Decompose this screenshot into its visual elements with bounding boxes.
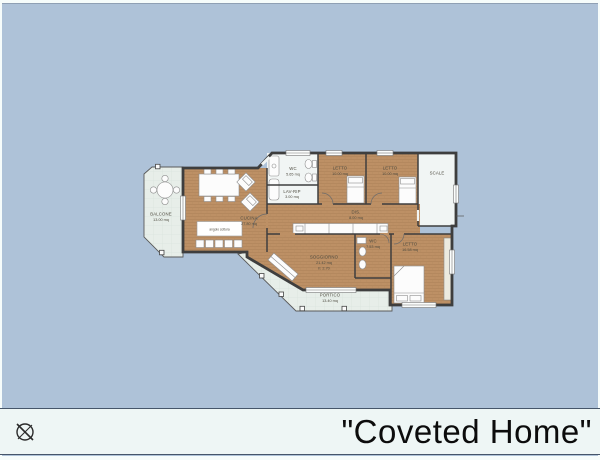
- kitchenette-label: angolo cottura: [209, 228, 229, 232]
- room-label-portico: PORTICO: [320, 293, 341, 298]
- room-label-letto-3: LETTO: [403, 242, 418, 247]
- room-area-letto-1: 10.00 mq: [332, 172, 348, 176]
- room-label-soggiorno: SOGGIORNO: [310, 255, 339, 260]
- room-area-soggiorno: 21.42 mq: [316, 261, 332, 265]
- room-label-scale: SCALE: [430, 171, 445, 176]
- room-label-letto-2: LETTO: [383, 166, 398, 171]
- room-area-portico: 13.40 mq: [322, 299, 338, 303]
- room-label-letto-1: LETTO: [333, 166, 348, 171]
- bed: [399, 177, 416, 204]
- room-area-dis: 8.00 mq: [349, 216, 363, 220]
- room-label-cucina: CUCINA: [240, 216, 257, 221]
- floor-plan-page: angolo cottura BALCONE 13.00 mq CUCINA 2…: [0, 0, 600, 460]
- plan-title: "Coveted Home": [341, 413, 592, 451]
- kitchen-counter: [196, 240, 242, 248]
- hallway-sideboard: [293, 224, 388, 235]
- room-area-letto-3: 16.58 mq: [402, 248, 418, 252]
- room-area-wc-top: 5.65 mq: [286, 173, 300, 177]
- stairs-floor: [418, 153, 456, 226]
- room-area-balcone: 13.00 mq: [153, 218, 169, 222]
- bed: [347, 176, 364, 203]
- kitchenette-label-box: angolo cottura: [197, 222, 242, 237]
- room-label-balcone: BALCONE: [150, 212, 172, 217]
- room-area-letto-2: 10.00 mq: [382, 172, 398, 176]
- page-bottom-border: [0, 456, 600, 460]
- room-area-lav-rip: 3.00 mq: [285, 195, 299, 199]
- room-height-soggiorno: h: 2.70: [318, 267, 330, 271]
- room-label-wc-main: WC: [369, 239, 376, 244]
- floor-plan-drawing: angolo cottura BALCONE 13.00 mq CUCINA 2…: [0, 0, 600, 460]
- room-label-wc-top: WC: [289, 166, 296, 171]
- room-area-wc-main: 7.53 mq: [366, 245, 380, 249]
- room-area-cucina: 27.80 mq: [241, 222, 257, 226]
- room-label-lav-rip: LAV-RIP: [283, 189, 300, 194]
- room-label-dis: DIS.: [352, 210, 361, 215]
- crossed-circle-icon: [13, 420, 37, 444]
- dining-table: [199, 169, 239, 202]
- title-bar: "Coveted Home": [0, 408, 600, 455]
- double-bed: [394, 266, 424, 303]
